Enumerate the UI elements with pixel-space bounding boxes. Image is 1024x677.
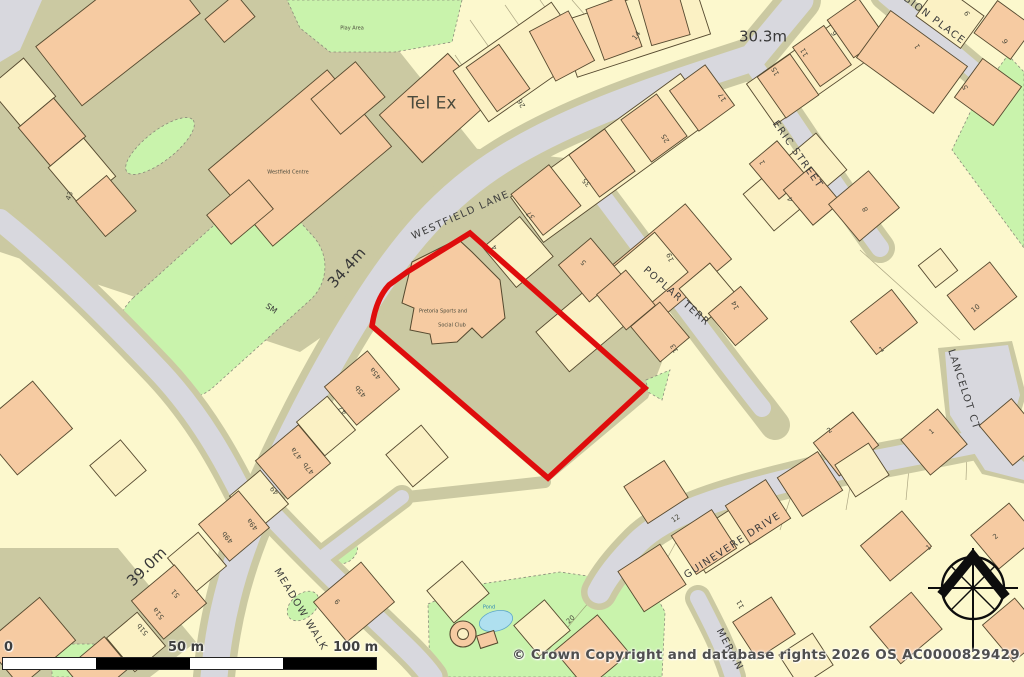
place-tel-ex: Tel Ex <box>408 96 457 113</box>
scale-label-50m: 50 m <box>168 640 204 655</box>
scale-bar-segment <box>190 658 283 669</box>
scale-label-100m: 100 m <box>333 640 378 655</box>
scale-bar <box>2 657 377 670</box>
map-graphics <box>0 0 1024 677</box>
scale-bar-segment <box>96 658 189 669</box>
scale-bar-segment <box>3 658 96 669</box>
place-pretoria-line1: Pretoria Sports and <box>419 310 467 315</box>
elevation-30-3m: 30.3m <box>739 30 787 45</box>
place-play-area: Play Area <box>340 27 364 32</box>
place-pond: Pond <box>483 606 495 611</box>
playground-structure-inner <box>458 629 469 640</box>
scale-label-0: 0 <box>4 640 13 655</box>
place-pretoria-line2: Social Club <box>438 324 466 329</box>
place-westfield-centre: Westfield Centre <box>267 171 308 176</box>
scale-bar-segment <box>283 658 376 669</box>
copyright-notice: © Crown Copyright and database rights 20… <box>512 647 1020 663</box>
os-map-canvas[interactable]: WESTFIELD LANEERIC STREETPOPLAR TERRALBI… <box>0 0 1024 677</box>
